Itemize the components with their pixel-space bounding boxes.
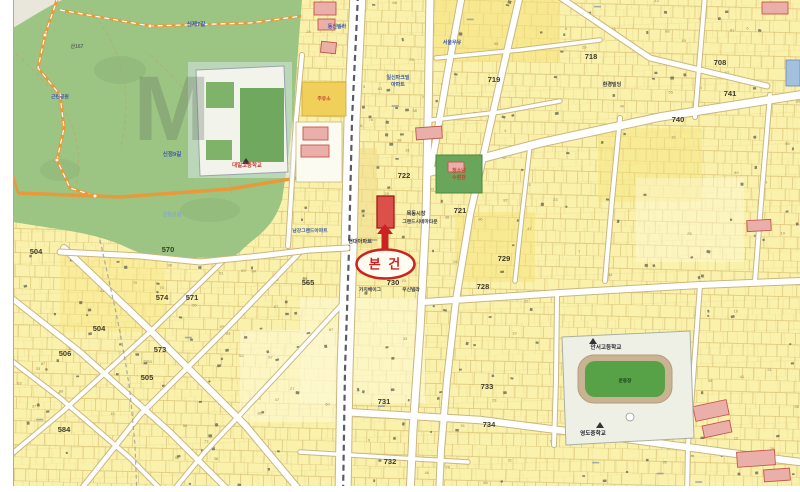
lot-number-texture: 73 (204, 439, 209, 444)
building-mark (389, 143, 393, 146)
building-pink (747, 219, 772, 231)
lot-number-texture: 92 (175, 455, 180, 460)
block-number: 741 (724, 89, 737, 98)
trail-node (43, 33, 47, 37)
building-mark (791, 362, 794, 364)
lot-number-texture: 81 (730, 27, 735, 32)
lot-number-texture: 70 (159, 285, 164, 290)
lot-number-texture: 23 (553, 197, 558, 202)
map-label: 청소년 (452, 167, 466, 174)
building-mark (116, 373, 119, 376)
map-label: 일신파크빌 (386, 74, 409, 81)
map-label: 동신빌라 (328, 23, 347, 30)
building-pink (314, 2, 336, 15)
building-mark (124, 266, 128, 269)
trail-node (93, 194, 97, 198)
blue-text-mark (594, 6, 601, 8)
lot-number-texture: 95 (494, 41, 499, 46)
building-mark (304, 206, 307, 209)
lot-number-texture: 13 (654, 0, 659, 3)
lot-number-texture: 70 (133, 280, 138, 285)
building-mark (86, 314, 88, 316)
lot-number-texture: 86 (258, 410, 263, 415)
trail-node (55, 158, 59, 162)
building-mark (373, 479, 375, 482)
map-label: 주유소 (317, 95, 331, 102)
block-number: 565 (302, 278, 315, 287)
map-label: 목동시장 (406, 209, 425, 217)
map-label: 그랜드시네마타운 (402, 218, 438, 225)
building-mark (623, 133, 626, 135)
lot-number-texture: 63 (241, 268, 246, 273)
lot-number-texture: 24 (306, 29, 311, 34)
lot-number-texture: 19 (512, 331, 517, 336)
lot-number-texture: 29 (384, 191, 389, 196)
lot-number-texture: 91 (461, 423, 466, 428)
building-mark (563, 33, 565, 36)
lot-number-texture: 19 (780, 230, 785, 235)
lot-number-texture: 51 (219, 271, 224, 276)
lot-number-texture: 46 (424, 470, 429, 475)
tree-patch (180, 198, 240, 222)
lot-number-texture: 63 (378, 86, 383, 91)
lot-number-texture: 53 (147, 359, 152, 364)
building-mark (324, 345, 327, 349)
lot-number-texture: 29 (492, 397, 497, 402)
lot-number-texture: 63 (17, 381, 22, 386)
block-number: 734 (483, 420, 496, 429)
lot-number-texture: 76 (368, 117, 373, 122)
block-number: 504 (30, 247, 43, 256)
building-mark (683, 73, 686, 76)
building-mark (707, 315, 709, 317)
block-number: 732 (384, 457, 397, 466)
lot-number-texture: 31 (405, 147, 410, 152)
lot-number-texture: 12 (734, 436, 739, 441)
building-mark (217, 364, 221, 367)
block-number: 722 (398, 171, 411, 180)
building-mark (441, 200, 443, 203)
lot-number-texture: 38 (445, 215, 450, 220)
lot-number-texture: 25 (687, 231, 692, 236)
lot-number-texture: 31 (507, 458, 512, 463)
map-label: 안서고등학교 (591, 343, 622, 351)
lot-number-texture: 19 (681, 38, 686, 43)
building-mark (664, 11, 667, 14)
building-mark (737, 473, 740, 476)
lot-number-texture: 88 (665, 28, 670, 33)
building-mark (541, 203, 544, 207)
building-mark (644, 264, 648, 267)
building-mark (408, 399, 410, 402)
map-canvas[interactable]: 3031101370413387393763282127928074559762… (0, 0, 800, 492)
building-pink (416, 126, 443, 140)
building-mark (554, 76, 557, 78)
building-mark (730, 219, 732, 221)
lot-number-texture: 47 (527, 226, 532, 231)
block-number: 733 (481, 382, 494, 391)
building-pink (762, 2, 788, 14)
building-mark (603, 479, 607, 482)
block-number: 719 (488, 75, 501, 84)
lot-number-texture: 60 (325, 401, 330, 406)
cadastral-map[interactable]: 3031101370413387393763282127928074559762… (0, 0, 800, 492)
lot-number-texture: 98 (794, 404, 799, 409)
building-mark (530, 308, 533, 311)
building-mark (395, 158, 399, 160)
building-mark (361, 210, 364, 213)
building-mark (393, 437, 396, 440)
block-number: 571 (186, 293, 199, 302)
lot-number-texture: 15 (671, 135, 676, 140)
building-mark (198, 266, 201, 269)
building-mark (208, 434, 212, 437)
lot-number-texture: 38 (397, 137, 402, 142)
block-number: 708 (714, 58, 727, 67)
building-blue (786, 60, 800, 86)
lot-number-texture: 68 (392, 0, 397, 5)
building-pink (320, 41, 336, 54)
lot-number-texture: 33 (36, 366, 41, 371)
lot-number-texture: 70 (446, 465, 451, 470)
block-number: 574 (156, 293, 169, 302)
lot-number-texture: 93 (708, 378, 713, 383)
lot-number-texture: 40 (620, 104, 625, 109)
building-pink (301, 145, 329, 157)
lot-number-texture: 70 (401, 278, 406, 283)
lot-number-texture: 29 (582, 45, 587, 50)
lot-number-texture: 62 (239, 353, 244, 358)
building-mark (385, 120, 389, 124)
lot-number-texture: 84 (252, 269, 257, 274)
building-mark (566, 152, 569, 154)
lot-number-texture: 87 (268, 355, 273, 360)
building-mark (54, 313, 56, 316)
lot-number-texture: 38 (214, 456, 219, 461)
lot-number-texture: 27 (290, 386, 295, 391)
building-mark (435, 100, 437, 103)
map-label: 환경빌딩 (603, 81, 622, 88)
block-number: 506 (59, 349, 72, 358)
block-number: 504 (93, 324, 106, 333)
park-school-field (240, 88, 284, 162)
building-mark (606, 198, 609, 200)
building-mark (391, 357, 394, 360)
building-mark (268, 468, 270, 471)
block-number: 584 (58, 425, 71, 434)
building-mark (88, 308, 91, 311)
building-mark (626, 471, 628, 473)
building-mark (740, 183, 743, 186)
lot-number-texture: 55 (668, 89, 673, 94)
lot-number-texture: 59 (409, 57, 414, 62)
lot-number-texture: 33 (403, 336, 408, 341)
building-mark (701, 391, 703, 394)
building-mark (362, 214, 364, 216)
building-pink (764, 468, 791, 482)
block-number: 573 (154, 345, 167, 354)
building-mark (301, 219, 303, 221)
block-number: 718 (585, 52, 598, 61)
block-number: 740 (672, 115, 685, 124)
map-label: 대일고등학교 (232, 161, 262, 169)
lot-number-texture: 37 (32, 403, 37, 408)
building-mark (437, 397, 440, 400)
building-mark (753, 87, 756, 90)
lot-number-texture: 87 (329, 327, 334, 332)
map-label: 서울우유 (443, 39, 462, 46)
building-mark (189, 483, 191, 485)
lot-number-texture: 87 (41, 361, 46, 366)
block-number: 729 (498, 254, 511, 263)
building-mark (455, 429, 459, 432)
lot-number-texture: 51 (453, 259, 458, 264)
building-mark (119, 343, 121, 345)
building-mark (670, 77, 674, 80)
building-mark (285, 301, 288, 304)
building-mark (372, 4, 375, 6)
building-mark (400, 133, 404, 135)
map-label: 가치베이그 (359, 286, 382, 293)
building-mark (540, 31, 543, 33)
building-mark (395, 107, 398, 109)
building-mark (612, 94, 615, 97)
building-mark (56, 359, 59, 362)
lot-number-texture: 10 (110, 411, 115, 416)
building-mark (387, 186, 390, 189)
building-pink (303, 127, 328, 140)
block-number: 505 (141, 373, 154, 382)
building-mark (535, 341, 538, 344)
building-mark (459, 32, 463, 35)
trail-node (148, 24, 152, 28)
building-mark (796, 222, 799, 225)
block-number: 728 (477, 282, 490, 291)
map-label: 영도중학교 (580, 429, 606, 437)
map-label: 우신빌라 (402, 286, 420, 293)
lot-number-texture: 87 (503, 197, 508, 202)
building-mark (762, 239, 765, 241)
building-mark (459, 369, 462, 371)
lot-number-texture: 38 (412, 108, 417, 113)
building-mark (66, 452, 68, 454)
lot-number-texture: 21 (767, 367, 772, 372)
park-label: 신제7길 (187, 20, 206, 28)
block-number: 721 (454, 206, 467, 215)
building-mark (473, 344, 476, 346)
blue-text-mark (657, 473, 664, 475)
marker-label: 본 건 (369, 257, 403, 272)
building-mark (646, 31, 648, 34)
lot-number-texture: 55 (183, 423, 188, 428)
building-mark (700, 437, 704, 439)
building-mark (296, 391, 300, 394)
building-mark (754, 166, 757, 169)
building-mark (190, 338, 193, 340)
building-mark (76, 376, 79, 378)
lot-number-texture: 89 (734, 170, 739, 175)
lot-number-texture: 56 (785, 141, 790, 146)
block-number: 570 (162, 245, 175, 254)
map-label: 남강그랜드아파트 (292, 227, 328, 234)
lot-number-texture: 88 (59, 388, 64, 393)
building-mark (376, 166, 379, 169)
building-mark (503, 391, 507, 394)
blue-text-mark (185, 337, 192, 339)
lot-number-texture: 98 (167, 262, 172, 267)
building-mark (492, 375, 495, 378)
lot-number-texture: 10 (734, 308, 739, 313)
map-label: 아파트 (391, 81, 405, 88)
building-mark (37, 403, 40, 406)
blue-text-mark (392, 105, 399, 107)
building-mark (560, 51, 563, 53)
blue-text-mark (36, 419, 43, 421)
building-mark (244, 336, 247, 339)
blue-text-mark (467, 19, 474, 21)
youth-center-parcel (436, 155, 482, 193)
building-mark (718, 17, 721, 20)
park-label: 근린공원 (51, 93, 69, 100)
block-number: 731 (378, 397, 391, 406)
map-label: 운동장 (619, 377, 632, 384)
building-mark (789, 343, 791, 345)
building-mark (199, 401, 202, 403)
map-label: 수련관 (452, 174, 466, 181)
blue-text-mark (695, 481, 702, 483)
building-mark (654, 72, 657, 74)
building-mark (753, 136, 756, 139)
lot-number-texture: 95 (662, 459, 667, 464)
court-circle (626, 413, 634, 421)
building-mark (500, 271, 504, 273)
building-mark (362, 106, 365, 109)
watermark-letter: M (134, 58, 211, 160)
lot-number-texture: 86 (483, 480, 488, 485)
building-mark (725, 11, 728, 14)
lot-number-texture: 86 (478, 217, 483, 222)
building-mark (285, 313, 289, 315)
building-mark (500, 480, 503, 482)
map-label: 현대아파트 (348, 237, 372, 245)
blue-text-mark (592, 462, 599, 464)
park-label: 산167 (71, 43, 84, 50)
building-mark (79, 301, 82, 304)
building-pink (737, 450, 776, 468)
building-mark (45, 368, 47, 370)
building-mark (135, 353, 139, 355)
building-mark (391, 388, 395, 391)
building-mark (601, 141, 604, 144)
park-label: 신정산길 (163, 211, 182, 218)
building-mark (405, 108, 409, 111)
lot-number-texture: 41 (740, 374, 745, 379)
building-mark (643, 194, 646, 196)
building-mark (755, 471, 758, 474)
lot-number-texture: 47 (275, 397, 280, 402)
building-mark (385, 133, 388, 136)
subject-parcel (377, 196, 394, 228)
building-mark (402, 236, 405, 239)
building-mark (646, 459, 649, 461)
lot-number-texture: 50 (192, 303, 197, 308)
lot-number-texture: 67 (274, 304, 279, 309)
